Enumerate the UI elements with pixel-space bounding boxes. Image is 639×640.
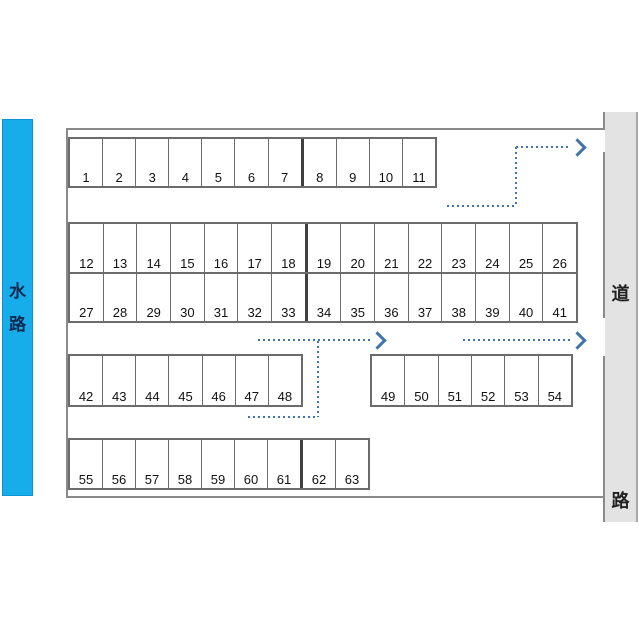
space-number: 20 — [341, 256, 374, 271]
parking-space-26: 26 — [542, 224, 576, 272]
parking-space-54: 54 — [538, 356, 571, 405]
parking-row-55-63: 555657585960616263 — [68, 438, 370, 490]
space-number: 31 — [205, 305, 238, 320]
route1-segment-horizontal — [447, 205, 516, 207]
parking-space-57: 57 — [135, 440, 168, 488]
space-number: 2 — [103, 170, 135, 185]
parking-space-38: 38 — [441, 274, 475, 322]
space-number: 60 — [235, 472, 267, 487]
space-number: 28 — [104, 305, 137, 320]
space-number: 47 — [236, 389, 268, 404]
space-number: 38 — [442, 305, 475, 320]
space-number: 57 — [136, 472, 168, 487]
parking-space-32: 32 — [237, 274, 271, 322]
space-number: 13 — [104, 256, 137, 271]
parking-space-4: 4 — [168, 139, 201, 186]
space-number: 37 — [409, 305, 442, 320]
parking-space-19: 19 — [305, 224, 341, 272]
route1-arrowhead-icon — [568, 138, 586, 156]
parking-space-60: 60 — [234, 440, 267, 488]
space-number: 51 — [439, 389, 471, 404]
space-number: 45 — [169, 389, 201, 404]
parking-space-24: 24 — [475, 224, 509, 272]
parking-space-6: 6 — [234, 139, 267, 186]
parking-space-16: 16 — [204, 224, 238, 272]
space-number: 54 — [539, 389, 571, 404]
parking-space-46: 46 — [202, 356, 235, 405]
space-number: 12 — [70, 256, 103, 271]
road-label-char-2: 路 — [605, 492, 636, 510]
space-number: 59 — [202, 472, 234, 487]
parking-space-25: 25 — [509, 224, 543, 272]
space-number: 32 — [238, 305, 271, 320]
space-number: 4 — [169, 170, 201, 185]
road-strip: 道 路 — [605, 112, 638, 522]
space-number: 10 — [370, 170, 402, 185]
parking-space-30: 30 — [170, 274, 204, 322]
space-number: 52 — [472, 389, 504, 404]
route2-segment-horizontal — [248, 416, 318, 418]
space-number: 49 — [372, 389, 404, 404]
boundary-line-top — [66, 128, 605, 130]
parking-row-27-41: 272829303132333435363738394041 — [70, 274, 576, 322]
parking-space-58: 58 — [168, 440, 201, 488]
space-number: 30 — [171, 305, 204, 320]
space-number: 7 — [269, 170, 301, 185]
route3-arrowhead-icon — [568, 331, 586, 349]
space-number: 5 — [202, 170, 234, 185]
parking-space-33: 33 — [271, 274, 305, 322]
parking-row-49-54: 495051525354 — [370, 354, 573, 407]
space-number: 41 — [543, 305, 576, 320]
space-number: 29 — [137, 305, 170, 320]
boundary-line-right-upper — [603, 112, 605, 130]
parking-space-53: 53 — [504, 356, 537, 405]
space-number: 44 — [136, 389, 168, 404]
space-number: 22 — [409, 256, 442, 271]
parking-space-28: 28 — [103, 274, 137, 322]
parking-space-35: 35 — [340, 274, 374, 322]
parking-space-5: 5 — [201, 139, 234, 186]
space-number: 19 — [308, 256, 341, 271]
space-number: 46 — [203, 389, 235, 404]
parking-block-12-41: 121314151617181920212223242526 272829303… — [68, 222, 578, 323]
parking-space-34: 34 — [305, 274, 341, 322]
parking-space-44: 44 — [135, 356, 168, 405]
parking-space-63: 63 — [335, 440, 368, 488]
parking-space-14: 14 — [136, 224, 170, 272]
parking-space-43: 43 — [102, 356, 135, 405]
parking-space-51: 51 — [438, 356, 471, 405]
space-number: 40 — [510, 305, 543, 320]
parking-space-23: 23 — [441, 224, 475, 272]
parking-space-41: 41 — [542, 274, 576, 322]
route2-segment-upper — [258, 339, 370, 341]
parking-space-21: 21 — [374, 224, 408, 272]
parking-row-42-48: 42434445464748 — [68, 354, 303, 407]
parking-space-45: 45 — [168, 356, 201, 405]
parking-space-62: 62 — [300, 440, 335, 488]
parking-space-39: 39 — [475, 274, 509, 322]
parking-space-55: 55 — [70, 440, 102, 488]
waterway-strip: 水 路 — [2, 119, 33, 496]
parking-space-2: 2 — [102, 139, 135, 186]
space-number: 8 — [304, 170, 336, 185]
space-number: 11 — [403, 170, 435, 185]
parking-space-56: 56 — [102, 440, 135, 488]
parking-space-12: 12 — [70, 224, 103, 272]
parking-space-61: 61 — [267, 440, 300, 488]
space-number: 48 — [269, 389, 301, 404]
space-number: 35 — [341, 305, 374, 320]
parking-space-15: 15 — [170, 224, 204, 272]
parking-row-12-26: 121314151617181920212223242526 — [70, 224, 576, 274]
parking-space-36: 36 — [374, 274, 408, 322]
space-number: 63 — [336, 472, 368, 487]
space-number: 26 — [543, 256, 576, 271]
space-number: 21 — [375, 256, 408, 271]
boundary-line-right-middle — [603, 152, 605, 318]
space-number: 3 — [136, 170, 168, 185]
parking-space-1: 1 — [70, 139, 102, 186]
parking-space-9: 9 — [336, 139, 369, 186]
space-number: 25 — [510, 256, 543, 271]
space-number: 55 — [70, 472, 102, 487]
space-number: 1 — [70, 170, 102, 185]
parking-space-47: 47 — [235, 356, 268, 405]
parking-space-17: 17 — [237, 224, 271, 272]
route3-segment-to-road — [463, 339, 570, 341]
space-number: 34 — [308, 305, 341, 320]
route1-segment-vertical — [515, 147, 517, 207]
space-number: 6 — [235, 170, 267, 185]
space-number: 62 — [303, 472, 335, 487]
waterway-label-char-1: 水 — [9, 283, 26, 300]
parking-space-37: 37 — [408, 274, 442, 322]
parking-space-48: 48 — [268, 356, 301, 405]
parking-space-22: 22 — [408, 224, 442, 272]
route2-segment-vertical — [317, 341, 319, 417]
parking-space-42: 42 — [70, 356, 102, 405]
space-number: 17 — [238, 256, 271, 271]
parking-space-49: 49 — [372, 356, 404, 405]
parking-space-29: 29 — [136, 274, 170, 322]
boundary-line-bottom — [66, 496, 605, 498]
space-number: 43 — [103, 389, 135, 404]
parking-space-59: 59 — [201, 440, 234, 488]
space-number: 50 — [405, 389, 437, 404]
boundary-line-right-lower — [603, 356, 605, 522]
parking-lot-map: 水 路 道 路 1234567891011 121314151617181920… — [0, 0, 639, 640]
space-number: 15 — [171, 256, 204, 271]
parking-space-13: 13 — [103, 224, 137, 272]
parking-space-50: 50 — [404, 356, 437, 405]
parking-space-20: 20 — [340, 224, 374, 272]
space-number: 18 — [272, 256, 305, 271]
parking-space-3: 3 — [135, 139, 168, 186]
space-number: 33 — [272, 305, 305, 320]
parking-space-10: 10 — [369, 139, 402, 186]
space-number: 23 — [442, 256, 475, 271]
space-number: 53 — [505, 389, 537, 404]
parking-space-7: 7 — [268, 139, 301, 186]
space-number: 16 — [205, 256, 238, 271]
parking-space-52: 52 — [471, 356, 504, 405]
parking-space-8: 8 — [301, 139, 336, 186]
space-number: 24 — [476, 256, 509, 271]
parking-space-40: 40 — [509, 274, 543, 322]
space-number: 9 — [337, 170, 369, 185]
space-number: 39 — [476, 305, 509, 320]
route2-arrowhead-icon — [368, 331, 386, 349]
space-number: 42 — [70, 389, 102, 404]
space-number: 14 — [137, 256, 170, 271]
parking-space-31: 31 — [204, 274, 238, 322]
space-number: 36 — [375, 305, 408, 320]
space-number: 56 — [103, 472, 135, 487]
parking-space-27: 27 — [70, 274, 103, 322]
road-label-char-1: 道 — [605, 285, 636, 303]
space-number: 58 — [169, 472, 201, 487]
parking-row-1-11: 1234567891011 — [68, 137, 437, 188]
parking-space-11: 11 — [402, 139, 435, 186]
space-number: 27 — [70, 305, 103, 320]
waterway-label-char-2: 路 — [9, 316, 26, 333]
route1-segment-to-road — [516, 146, 570, 148]
space-number: 61 — [268, 472, 300, 487]
parking-space-18: 18 — [271, 224, 305, 272]
